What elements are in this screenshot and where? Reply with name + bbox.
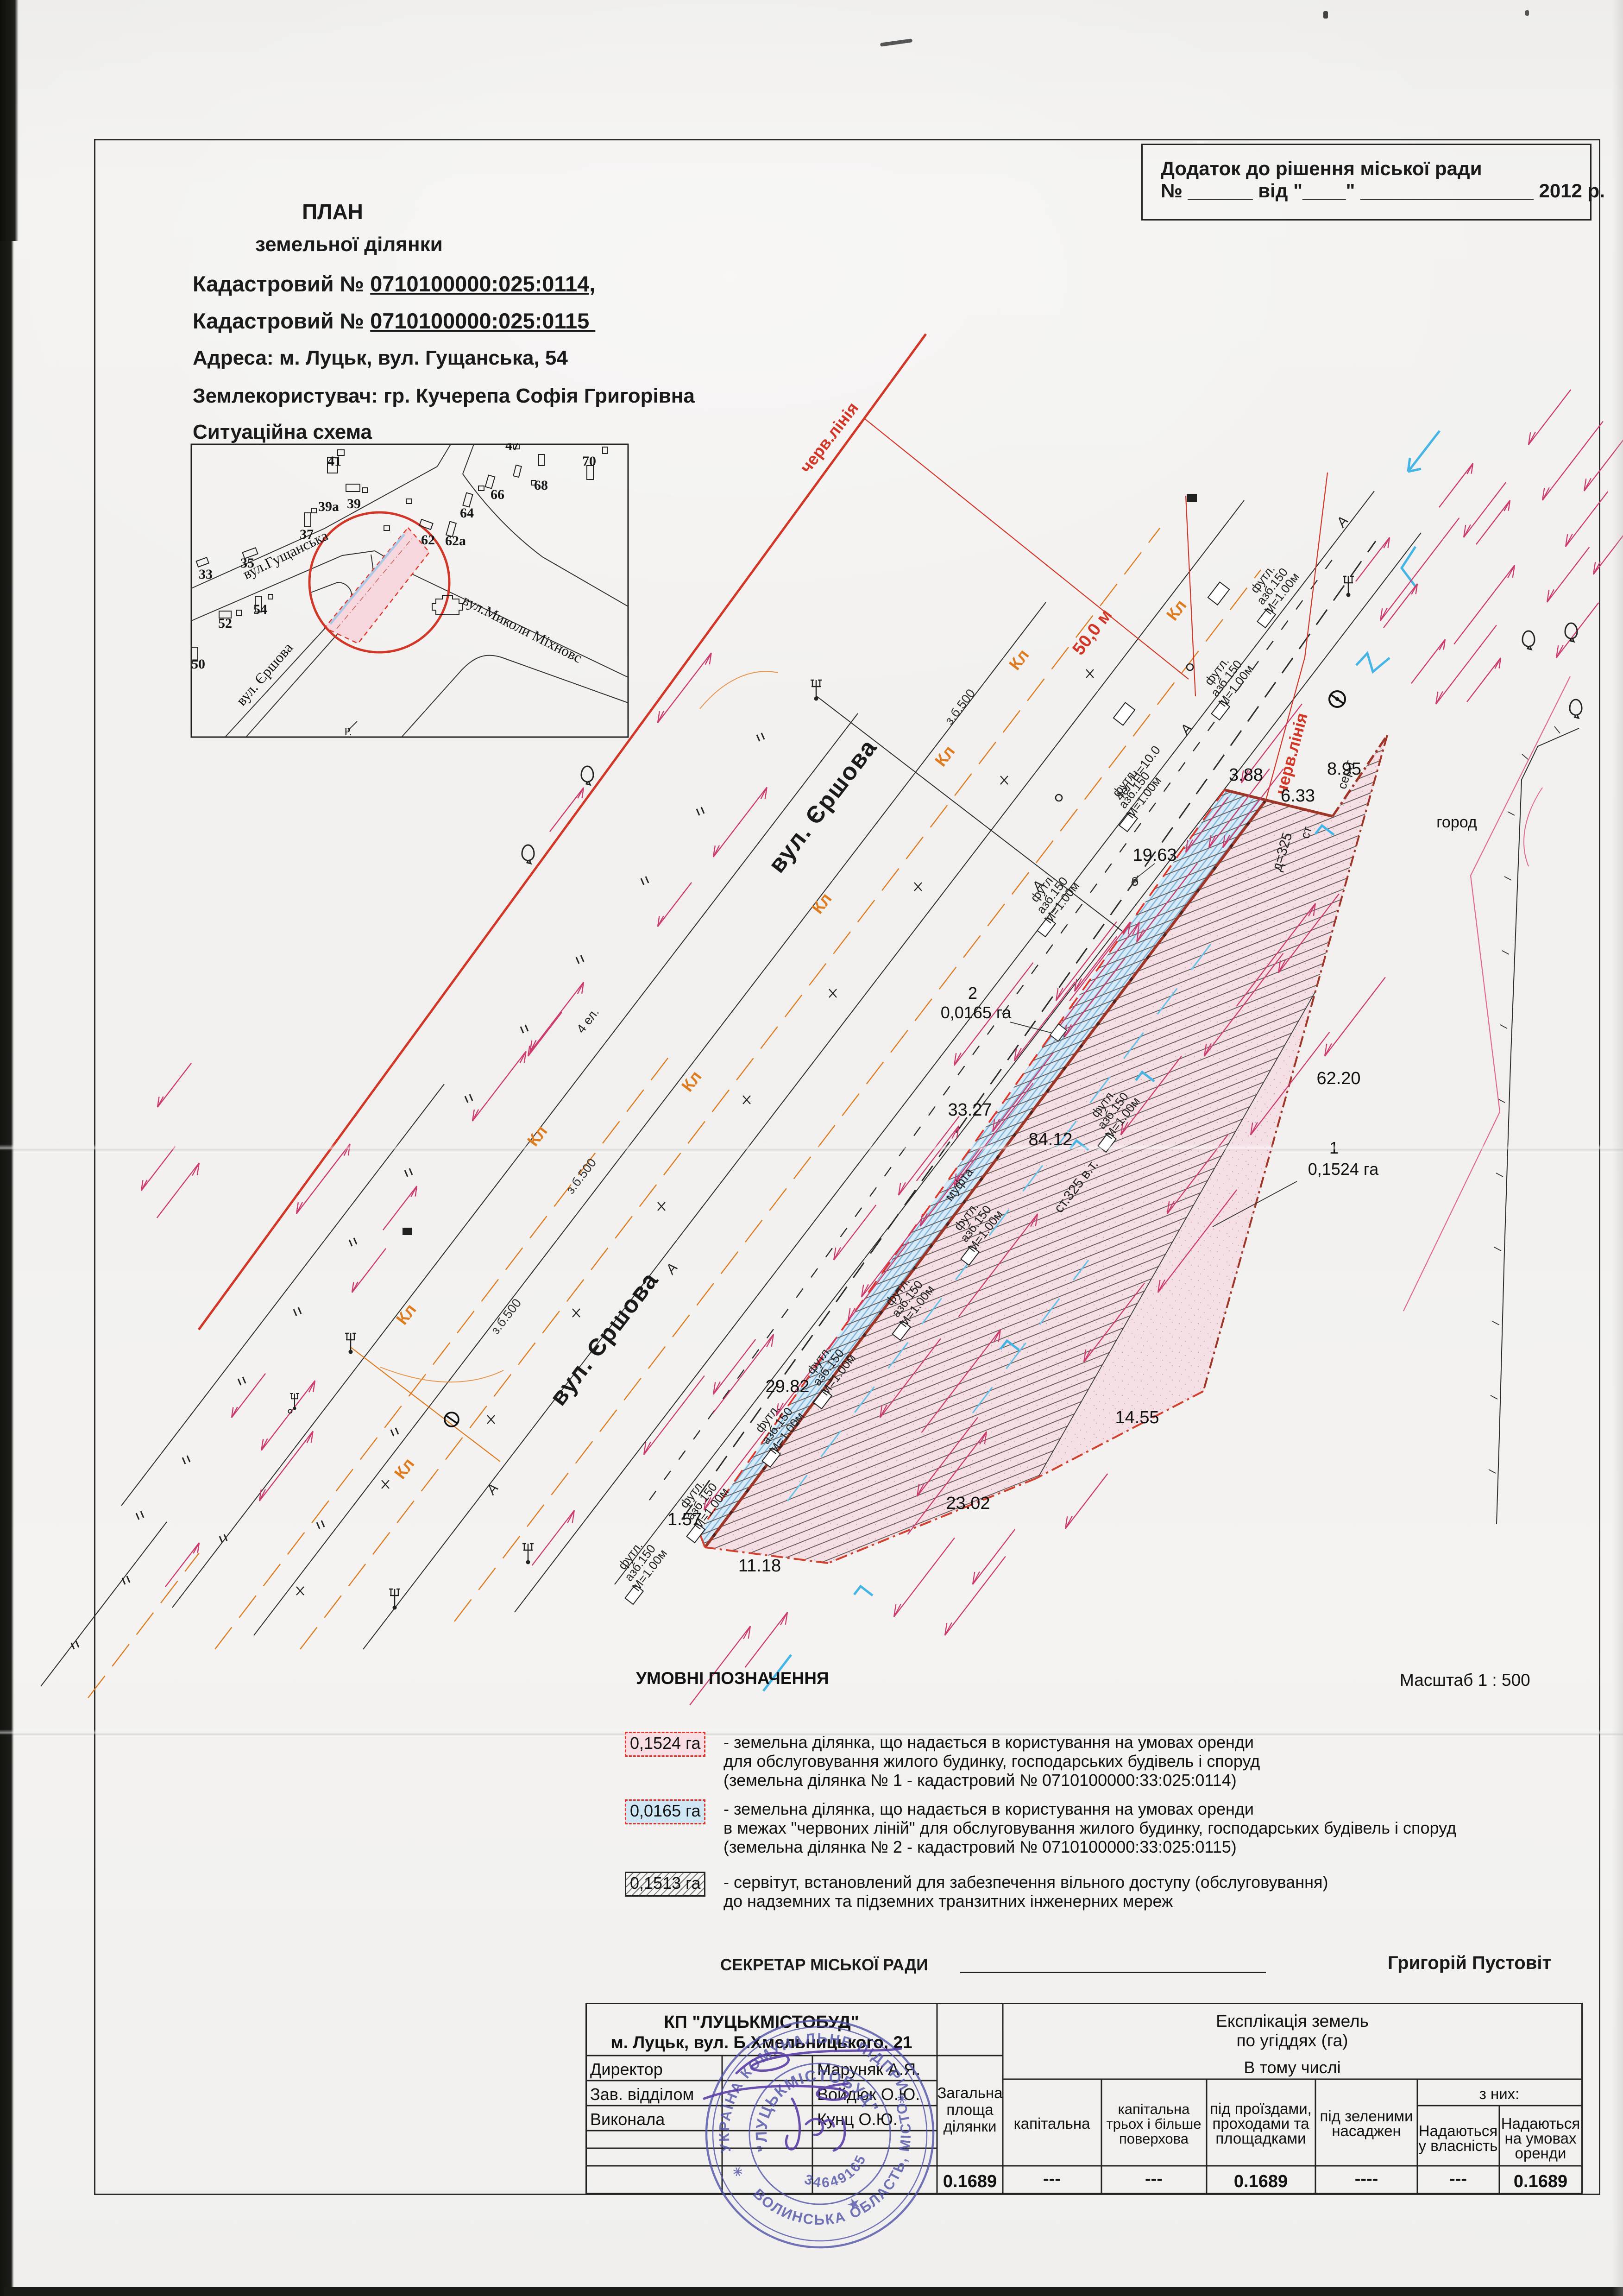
svg-text:Кл: Кл <box>390 1454 418 1482</box>
svg-text:вул. Єршова: вул. Єршова <box>233 639 296 709</box>
svg-text:трьох і більше: трьох і більше <box>1106 2116 1201 2132</box>
svg-text:0.1689: 0.1689 <box>943 2172 997 2191</box>
svg-text:Р.: Р. <box>344 726 352 738</box>
svg-text:В тому числі: В тому числі <box>1244 2058 1340 2077</box>
svg-text:4 ел.: 4 ел. <box>574 1005 602 1036</box>
svg-text:50: 50 <box>191 656 205 672</box>
svg-text:62: 62 <box>421 532 435 548</box>
svg-text:вул.Гущанська: вул.Гущанська <box>240 527 330 582</box>
svg-text:68: 68 <box>534 478 548 493</box>
svg-text:0,1524 га: 0,1524 га <box>1308 1160 1379 1179</box>
svg-text:по угіддях (га): по угіддях (га) <box>1236 2031 1348 2050</box>
svg-text:черв.лінія: черв.лінія <box>1271 711 1311 796</box>
svg-text:50,0 м: 50,0 м <box>1069 606 1116 659</box>
svg-text:41: 41 <box>327 454 341 469</box>
svg-text:город: город <box>1436 814 1477 831</box>
svg-text:62а: 62а <box>445 533 466 549</box>
svg-text:64: 64 <box>460 505 474 521</box>
svg-text:2: 2 <box>968 984 977 1003</box>
svg-text:Кл: Кл <box>1163 596 1190 624</box>
svg-text:з.б.500: з.б.500 <box>942 687 978 727</box>
svg-text:вул.Миколи Міхновс: вул.Миколи Міхновс <box>460 592 585 666</box>
svg-text:0.1689: 0.1689 <box>1234 2172 1288 2191</box>
svg-text:насаджен: насаджен <box>1332 2122 1401 2139</box>
svg-text:47: 47 <box>505 443 519 453</box>
svg-text:Експлікація земель: Експлікація земель <box>1216 2012 1369 2031</box>
svg-text:39: 39 <box>347 496 361 511</box>
svg-text:вул. Єршова: вул. Єршова <box>763 734 882 878</box>
svg-text:19.63: 19.63 <box>1132 845 1176 865</box>
svg-text:А: А <box>483 1481 502 1498</box>
svg-text:капітальна: капітальна <box>1014 2115 1090 2132</box>
svg-text:66: 66 <box>491 487 504 502</box>
svg-text:вул. Єршова: вул. Єршова <box>545 1267 664 1411</box>
svg-text:з.б.500: з.б.500 <box>488 1296 524 1337</box>
svg-text:капітальна: капітальна <box>1118 2101 1190 2117</box>
svg-text:----: ---- <box>1355 2169 1378 2189</box>
svg-text:Кл: Кл <box>392 1300 420 1328</box>
svg-text:0.1689: 0.1689 <box>1514 2172 1567 2191</box>
svg-text:Кл: Кл <box>678 1067 705 1095</box>
svg-text:23.02: 23.02 <box>946 1494 990 1513</box>
svg-text:Кл: Кл <box>808 889 836 917</box>
svg-text:54: 54 <box>253 602 267 617</box>
svg-text:А: А <box>1333 513 1352 531</box>
svg-text:70: 70 <box>582 454 596 469</box>
svg-text:поверхова: поверхова <box>1119 2131 1189 2147</box>
svg-text:52: 52 <box>218 616 232 631</box>
svg-text:площадками: площадками <box>1215 2130 1306 2147</box>
svg-text:---: --- <box>1449 2169 1467 2189</box>
svg-text:у власність: у власність <box>1419 2137 1498 2154</box>
svg-text:---: --- <box>1145 2169 1163 2189</box>
svg-text:А: А <box>662 1260 681 1278</box>
svg-text:з них:: з них: <box>1479 2085 1520 2102</box>
svg-text:14.55: 14.55 <box>1115 1408 1159 1427</box>
svg-text:0,0165 га: 0,0165 га <box>941 1003 1012 1022</box>
svg-text:29.82: 29.82 <box>765 1377 809 1396</box>
svg-text:39а: 39а <box>318 499 339 514</box>
svg-text:6.33: 6.33 <box>1281 786 1315 806</box>
svg-text:33.27: 33.27 <box>948 1100 992 1120</box>
svg-text:33: 33 <box>199 567 213 582</box>
svg-text:з.б.500: з.б.500 <box>563 1156 599 1197</box>
svg-text:62.20: 62.20 <box>1316 1069 1360 1088</box>
svg-text:11.18: 11.18 <box>738 1556 781 1576</box>
svg-text:3.88: 3.88 <box>1229 765 1263 785</box>
svg-text:оренди: оренди <box>1515 2145 1566 2162</box>
svg-text:---: --- <box>1043 2169 1061 2189</box>
